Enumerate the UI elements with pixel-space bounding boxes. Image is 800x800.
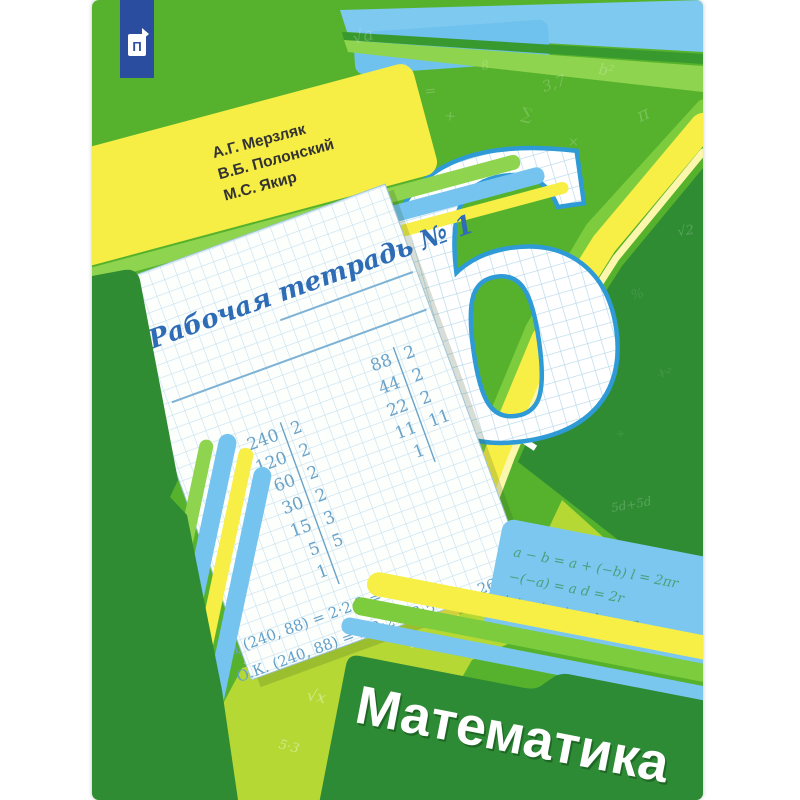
- publisher-logo: П: [120, 0, 154, 78]
- page-background: √a9=3,7∑b²π×a²+b²√2+8%x²÷5d+5d2a√x∞5·3=c…: [0, 0, 800, 800]
- math-doodle: x²: [657, 365, 672, 382]
- math-doodle: √2: [676, 223, 694, 240]
- math-doodle: √x: [305, 685, 327, 707]
- book-cover: √a9=3,7∑b²π×a²+b²√2+8%x²÷5d+5d2a√x∞5·3=c…: [92, 0, 703, 800]
- publisher-logo-glyph: П: [132, 39, 141, 54]
- math-doodle: b²: [597, 60, 615, 80]
